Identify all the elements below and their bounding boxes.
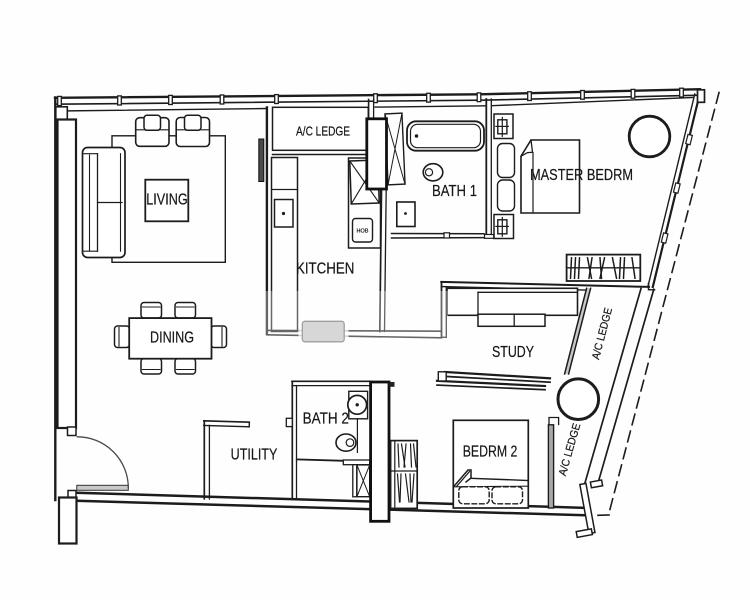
svg-text:KITCHEN: KITCHEN [296, 260, 355, 277]
svg-text:A/C LEDGE: A/C LEDGE [296, 125, 350, 139]
svg-text:MASTER BEDRM: MASTER BEDRM [530, 167, 633, 184]
svg-text:BEDRM 2: BEDRM 2 [463, 444, 518, 461]
svg-text:HOB: HOB [357, 229, 369, 235]
svg-text:LIVING: LIVING [146, 192, 188, 209]
svg-text:DINING: DINING [150, 329, 194, 346]
svg-text:BATH 1: BATH 1 [432, 183, 477, 200]
svg-text:STUDY: STUDY [492, 344, 534, 361]
svg-text:BATH 2: BATH 2 [303, 411, 349, 428]
svg-text:UTILITY: UTILITY [231, 447, 278, 464]
